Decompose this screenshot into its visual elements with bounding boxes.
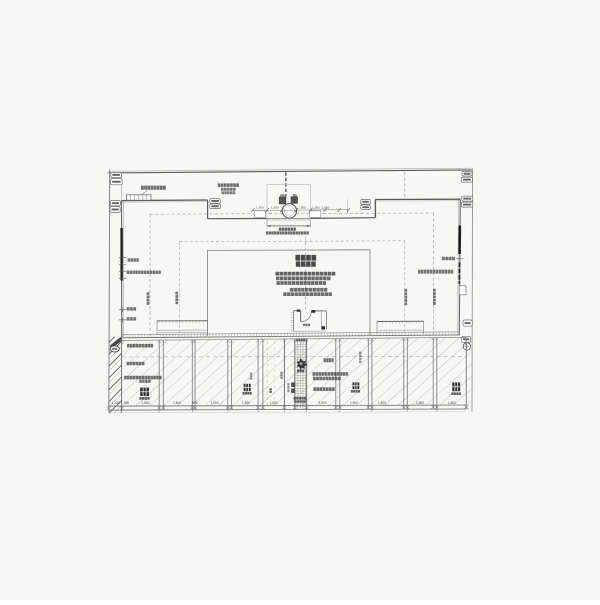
svg-text:1,500: 1,500 [312,205,320,209]
svg-text:1,500: 1,500 [322,205,330,209]
svg-text:1,500: 1,500 [298,205,306,209]
svg-text:1,500: 1,500 [256,205,264,209]
svg-text:950: 950 [192,401,198,405]
svg-text:950: 950 [124,401,130,405]
svg-text:2,500: 2,500 [319,401,327,405]
svg-text:1,500: 1,500 [173,401,181,405]
svg-text:1,500: 1,500 [350,401,358,405]
svg-text:1,500: 1,500 [211,401,219,405]
svg-text:1,100: 1,100 [112,401,120,405]
svg-text:1,500: 1,500 [242,401,250,405]
svg-text:1,500: 1,500 [271,205,279,209]
svg-text:1,500: 1,500 [378,401,386,405]
svg-text:1,500: 1,500 [270,401,278,405]
svg-text:1,500: 1,500 [142,401,150,405]
svg-text:1,500: 1,500 [416,401,424,405]
svg-text:1,500: 1,500 [448,401,456,405]
